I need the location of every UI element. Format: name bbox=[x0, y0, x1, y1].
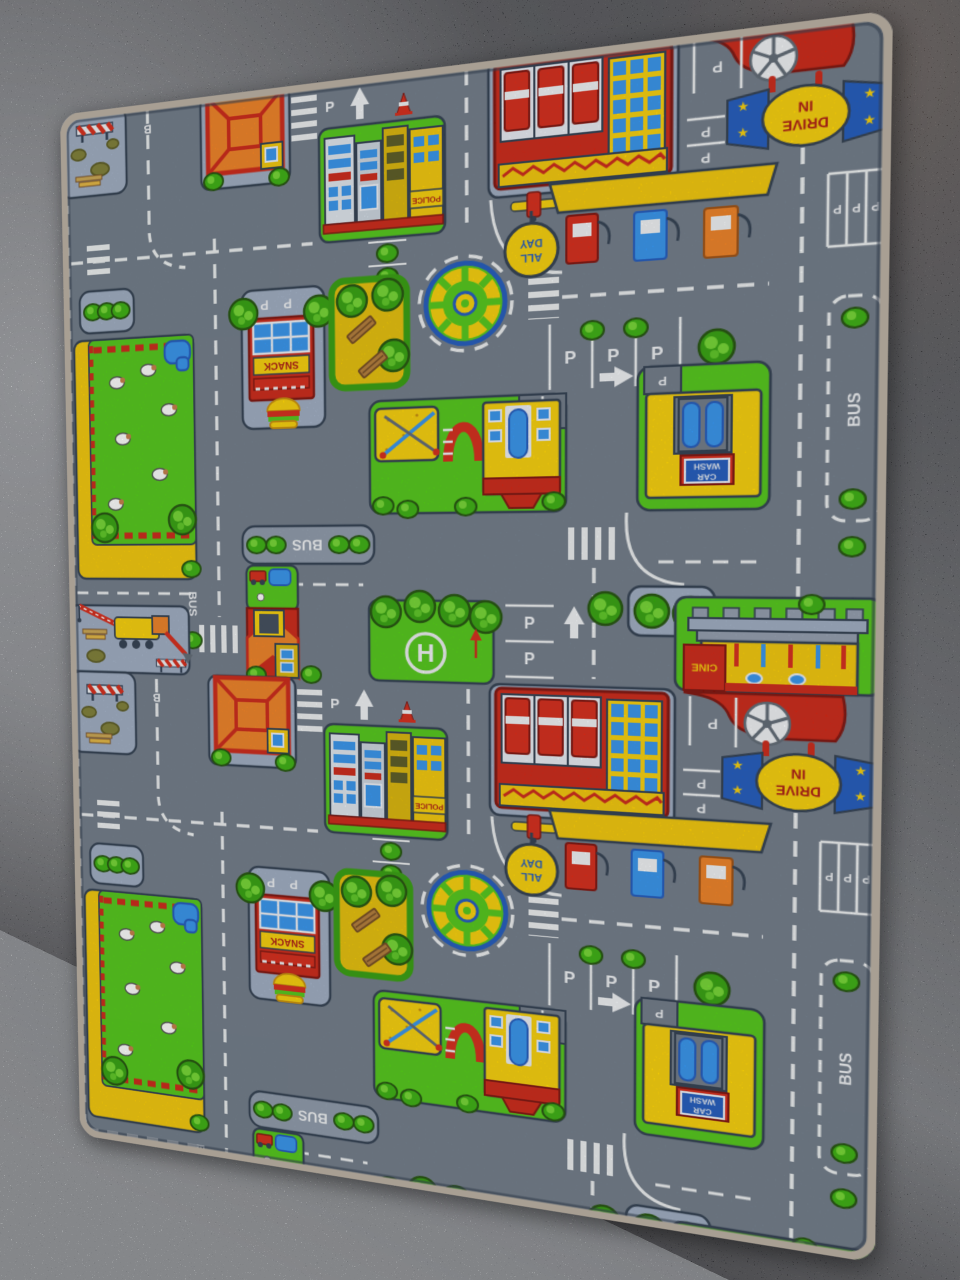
rug-artwork: POLICE P P P bbox=[60, 10, 893, 1263]
rug-fiber-grain bbox=[60, 10, 893, 1263]
photo-scene: POLICE P P P bbox=[0, 0, 960, 1280]
rug-surface bbox=[60, 10, 893, 1263]
play-rug: POLICE P P P bbox=[60, 10, 893, 1263]
